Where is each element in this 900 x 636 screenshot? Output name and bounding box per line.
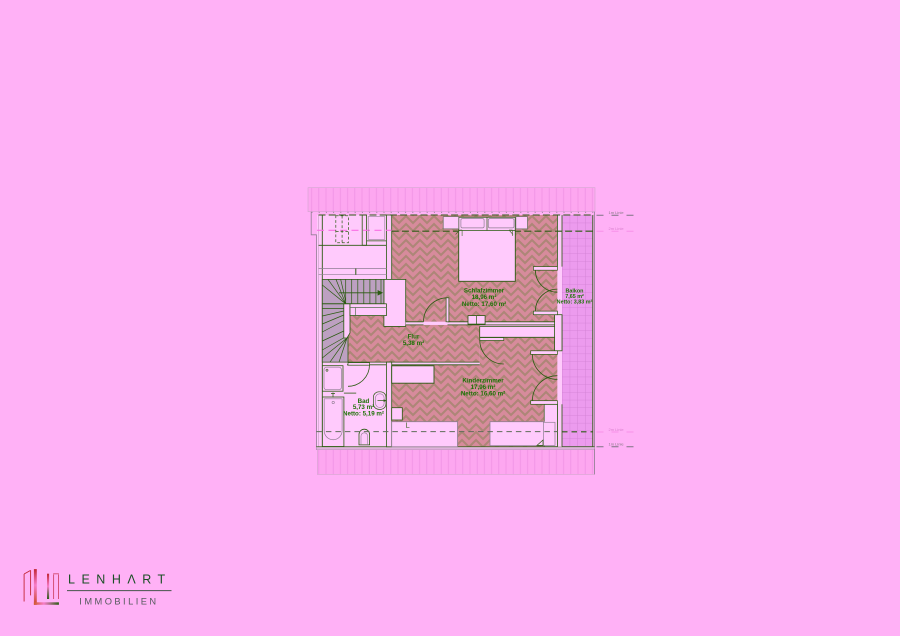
svg-text:IMMOBILIEN: IMMOBILIEN [79,596,158,606]
svg-text:Netto: 16,60 m²: Netto: 16,60 m² [461,390,505,397]
svg-text:Netto: 17,60 m²: Netto: 17,60 m² [462,301,506,308]
svg-text:1m Linie: 1m Linie [609,442,625,447]
svg-text:1m Linie: 1m Linie [609,210,625,215]
svg-text:2m Linie: 2m Linie [609,427,625,432]
svg-text:Netto: 5,19 m²: Netto: 5,19 m² [343,410,384,417]
svg-text:Netto: 3,83 m²: Netto: 3,83 m² [557,300,593,306]
svg-text:2m Linie: 2m Linie [609,226,625,231]
svg-text:LENHΛRT: LENHΛRT [68,572,172,586]
svg-text:5,38 m²: 5,38 m² [403,340,424,347]
